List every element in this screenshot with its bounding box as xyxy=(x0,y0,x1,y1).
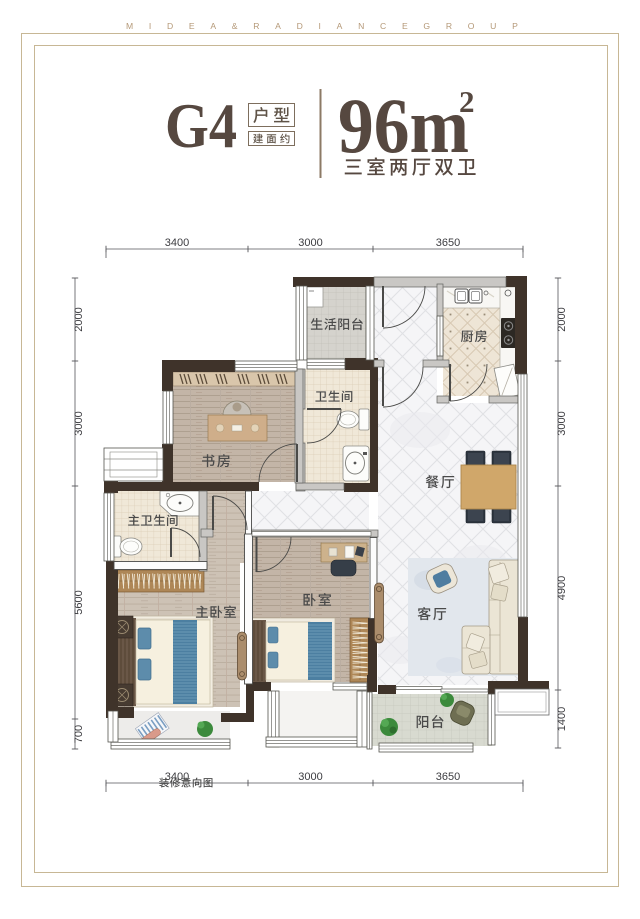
svg-text:5600: 5600 xyxy=(73,590,85,614)
svg-text:3650: 3650 xyxy=(436,237,460,249)
svg-text:2000: 2000 xyxy=(73,307,85,331)
svg-text:3400: 3400 xyxy=(165,237,189,249)
svg-text:3000: 3000 xyxy=(556,411,568,435)
svg-text:3000: 3000 xyxy=(298,237,322,249)
svg-text:700: 700 xyxy=(73,725,85,743)
svg-text:G4: G4 xyxy=(165,90,237,161)
svg-text:MIDEA&RADIANCEGROUP: MIDEA&RADIANCEGROUP xyxy=(126,21,532,31)
svg-text:3000: 3000 xyxy=(73,411,85,435)
svg-text:96m: 96m xyxy=(338,82,469,169)
svg-text:2: 2 xyxy=(459,84,475,119)
svg-text:1400: 1400 xyxy=(556,707,568,731)
svg-text:4900: 4900 xyxy=(556,576,568,600)
svg-text:2000: 2000 xyxy=(556,307,568,331)
svg-text:3650: 3650 xyxy=(436,771,460,783)
svg-text:3000: 3000 xyxy=(298,771,322,783)
